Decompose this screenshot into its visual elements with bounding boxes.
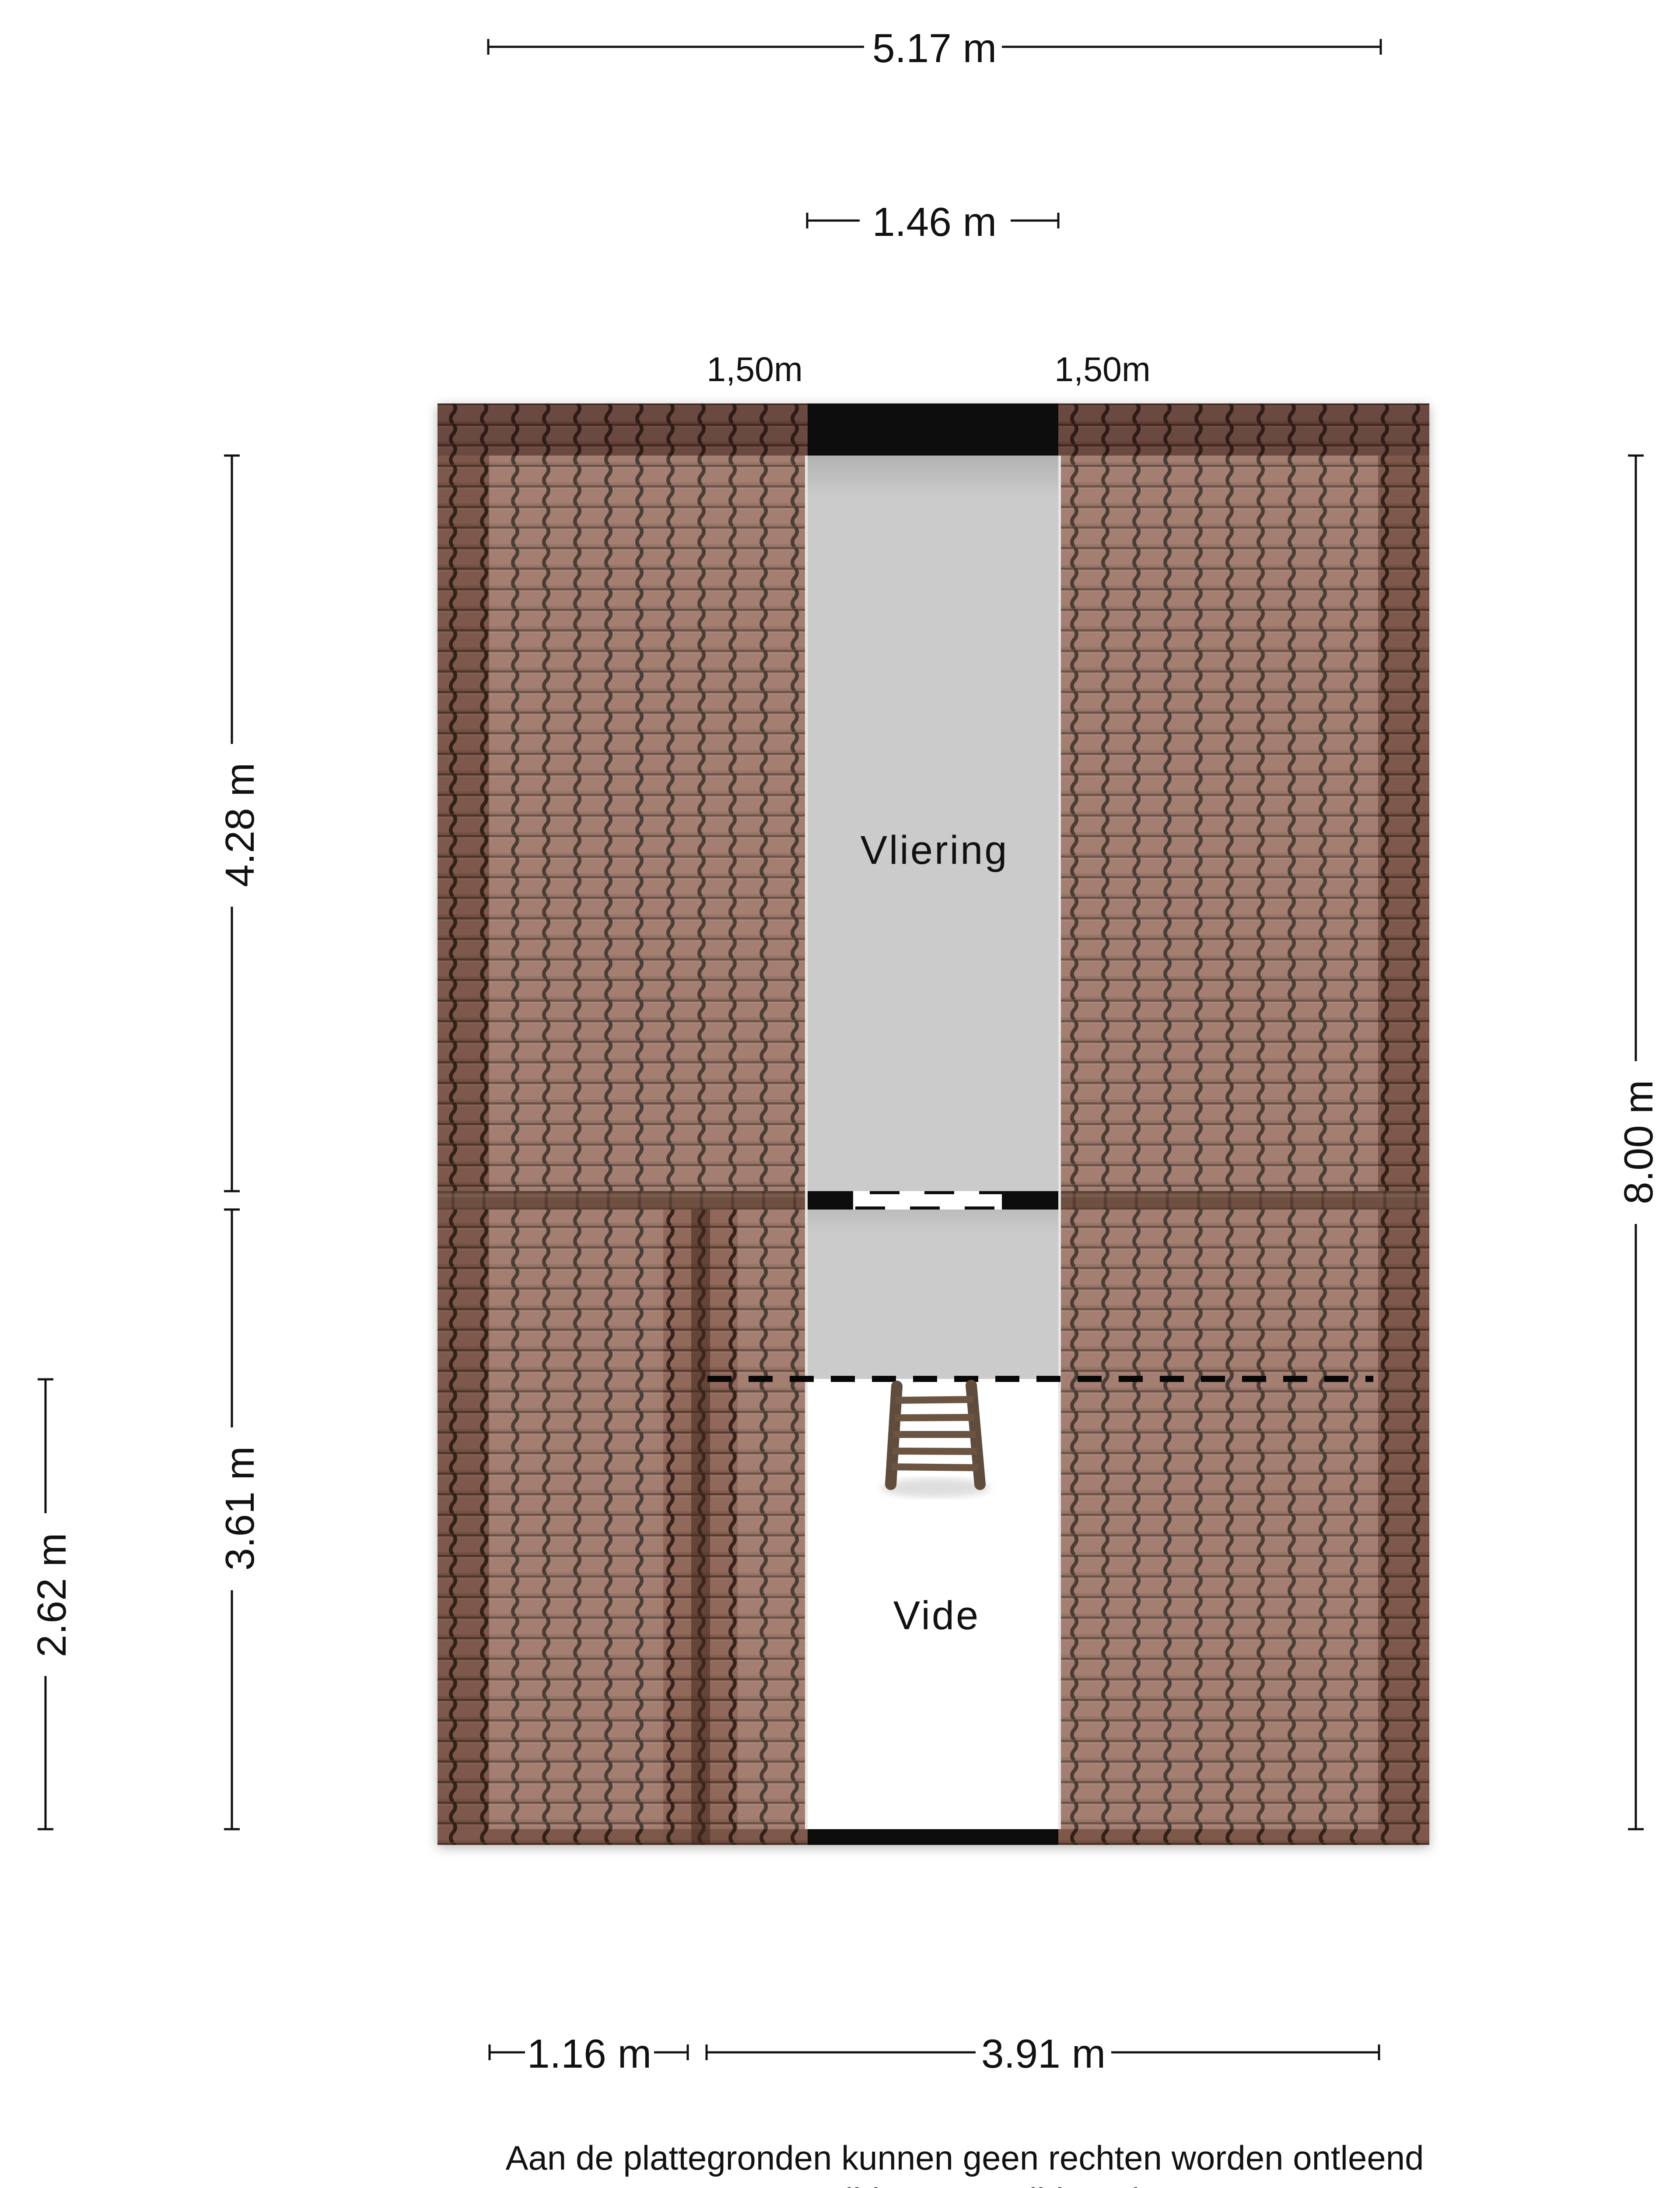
svg-text:Aan de plattegronden kunnen ge: Aan de plattegronden kunnen geen rechten… — [506, 2139, 1424, 2177]
svg-text:1.46 m: 1.46 m — [872, 199, 997, 245]
svg-text:3.61 m: 3.61 m — [217, 1446, 262, 1571]
svg-text:8.00 m: 8.00 m — [1616, 1080, 1661, 1204]
svg-text:1,50m: 1,50m — [1054, 350, 1151, 389]
svg-text:3.91 m: 3.91 m — [981, 2031, 1106, 2076]
svg-text:1.16 m: 1.16 m — [527, 2031, 651, 2076]
svg-text:2.62 m: 2.62 m — [29, 1533, 74, 1657]
svg-text:© Zibber www.zibber.nl: © Zibber www.zibber.nl — [790, 2181, 1140, 2188]
svg-text:1,50m: 1,50m — [707, 350, 803, 389]
svg-text:5.17 m: 5.17 m — [872, 25, 997, 71]
svg-text:Vliering: Vliering — [861, 828, 1009, 873]
svg-text:4.28 m: 4.28 m — [217, 763, 262, 887]
svg-text:Vide: Vide — [893, 1593, 980, 1638]
